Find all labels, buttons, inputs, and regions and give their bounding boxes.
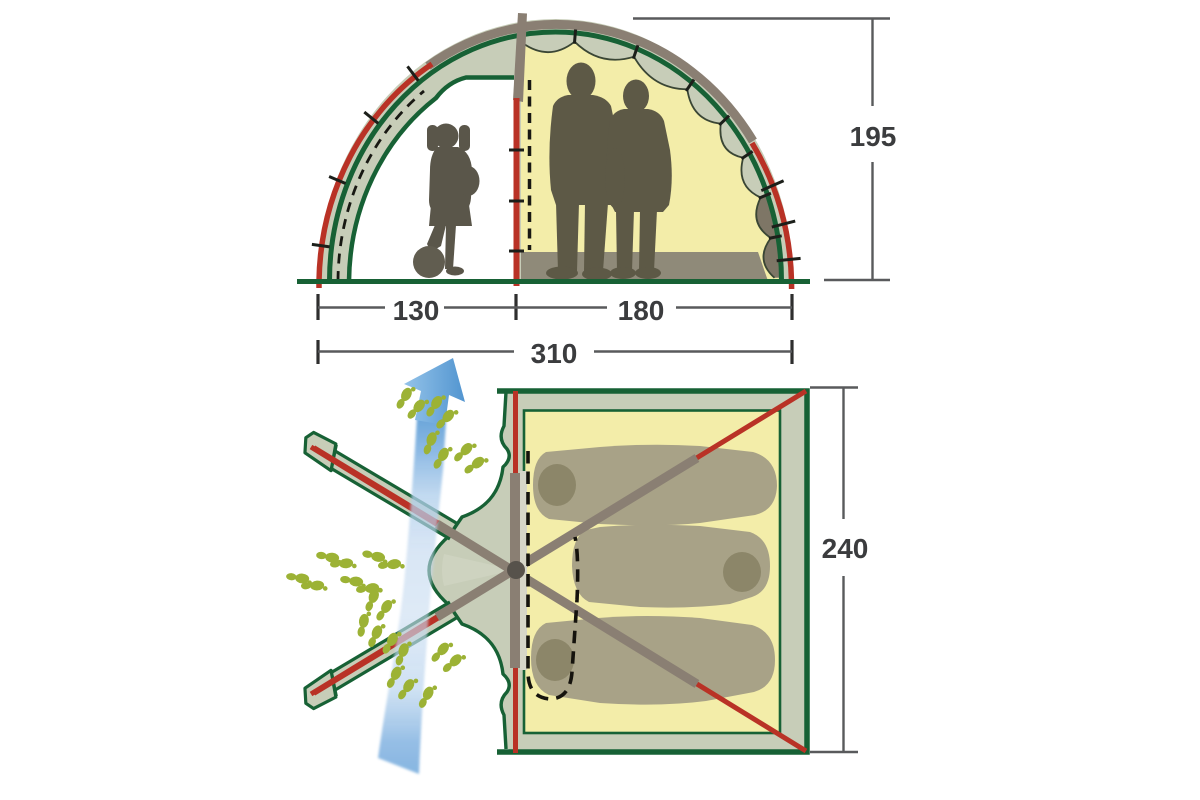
svg-text:240: 240 — [822, 533, 869, 564]
svg-text:130: 130 — [393, 295, 440, 326]
svg-text:180: 180 — [618, 295, 665, 326]
svg-text:310: 310 — [531, 338, 578, 369]
svg-text:195: 195 — [850, 121, 897, 152]
